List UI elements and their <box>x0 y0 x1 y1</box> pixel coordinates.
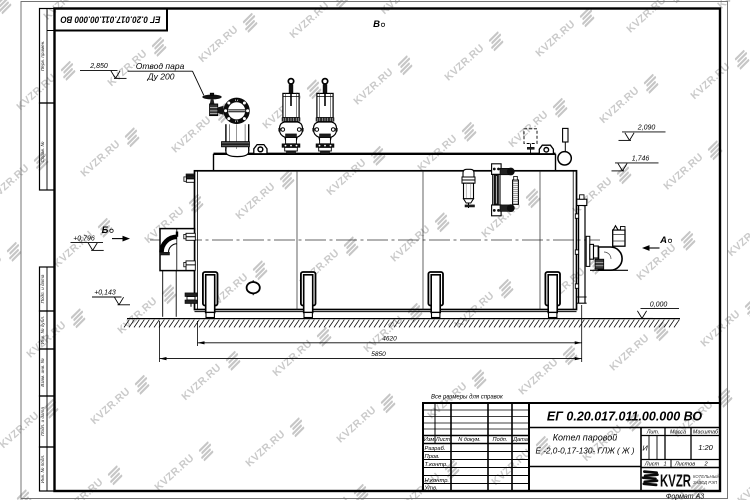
svg-text:Справ. №: Справ. № <box>40 142 45 163</box>
svg-text:Инв. № подл.: Инв. № подл. <box>40 455 45 484</box>
svg-text:1:20: 1:20 <box>698 443 713 452</box>
svg-text:Все размеры для справок: Все размеры для справок <box>431 394 504 400</box>
svg-text:Лист: Лист <box>435 437 451 443</box>
svg-text:Листов: Листов <box>674 462 695 468</box>
svg-text:Масштаб: Масштаб <box>693 429 719 435</box>
svg-text:0,000: 0,000 <box>650 301 668 308</box>
svg-text:+0,796: +0,796 <box>73 236 95 243</box>
svg-text:ЕГ 0.20.017.011.00.000 ВО: ЕГ 0.20.017.011.00.000 ВО <box>60 14 160 24</box>
svg-text:Перв. примен.: Перв. примен. <box>40 40 45 71</box>
svg-text:Масса: Масса <box>670 429 686 435</box>
svg-text:KVZR: KVZR <box>660 471 691 491</box>
svg-text:Подп. и дата: Подп. и дата <box>40 274 45 303</box>
svg-text:Е -2,0-0,17-130- ГЛЖ ( Ж ): Е -2,0-0,17-130- ГЛЖ ( Ж ) <box>536 447 635 456</box>
svg-text:ЕГ 0.20.017.011.00.000 ВО: ЕГ 0.20.017.011.00.000 ВО <box>547 410 702 424</box>
svg-text:Изм: Изм <box>424 437 435 443</box>
svg-text:Лист: Лист <box>644 462 660 468</box>
svg-text:Отвод пара: Отвод пара <box>136 61 185 71</box>
svg-text:Подп.: Подп. <box>493 437 508 443</box>
svg-text:Утв.: Утв. <box>424 485 438 491</box>
svg-text:Разраб.: Разраб. <box>425 446 446 452</box>
svg-text:2,850: 2,850 <box>89 63 108 70</box>
svg-text:ЗАВОД РЭП: ЗАВОД РЭП <box>693 480 718 485</box>
svg-text:В: В <box>373 19 380 30</box>
svg-text:Взам. инв. №: Взам. инв. № <box>40 358 45 386</box>
svg-text:Н.контр.: Н.контр. <box>425 478 450 484</box>
svg-text:Формат А3: Формат А3 <box>666 494 704 500</box>
svg-text:1: 1 <box>663 462 666 468</box>
svg-text:2,090: 2,090 <box>637 124 656 131</box>
svg-text:N докум.: N докум. <box>458 437 481 443</box>
svg-text:Т.контр.: Т.контр. <box>425 462 448 468</box>
svg-text:И: И <box>642 444 648 453</box>
svg-text:КОТЕЛЬНЫЙ: КОТЕЛЬНЫЙ <box>693 474 719 479</box>
svg-text:Подп. и дата: Подп. и дата <box>40 407 45 436</box>
svg-text:5850: 5850 <box>371 351 386 358</box>
svg-text:1,746: 1,746 <box>632 155 650 162</box>
svg-text:Б: Б <box>102 225 109 236</box>
svg-text:+0,143: +0,143 <box>94 290 116 297</box>
svg-text:4620: 4620 <box>382 335 397 342</box>
svg-text:Инв. № дубл.: Инв. № дубл. <box>40 316 45 344</box>
svg-text:А: А <box>659 235 667 246</box>
svg-text:Котел паровой: Котел паровой <box>553 433 618 443</box>
svg-text:Пров.: Пров. <box>425 454 440 460</box>
svg-text:Лит.: Лит. <box>646 429 660 435</box>
svg-text:Дата: Дата <box>512 437 528 443</box>
svg-text:Ду 200: Ду 200 <box>147 72 175 82</box>
